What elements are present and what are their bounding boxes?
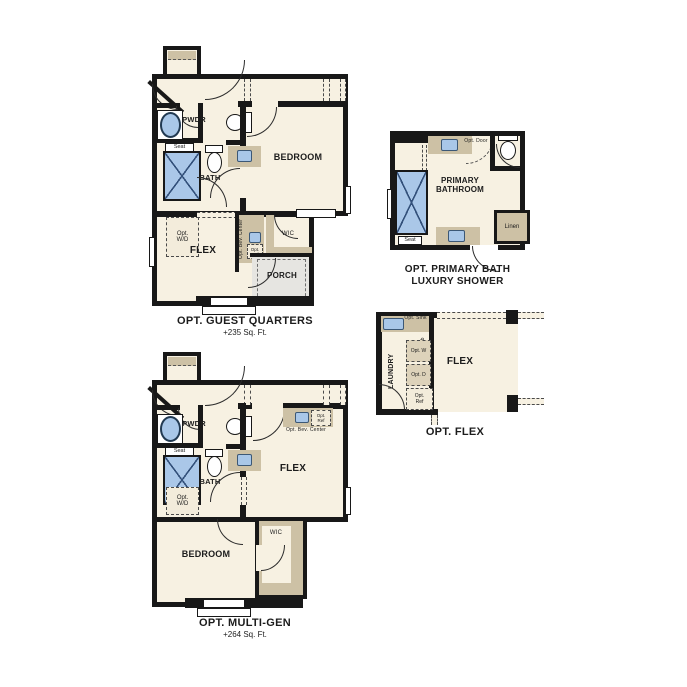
opt-wd-label: Opt. W/D xyxy=(172,495,194,507)
pwdr-label: PWDR xyxy=(176,420,212,428)
sink-icon xyxy=(295,412,309,423)
opening-dashed xyxy=(244,385,251,405)
bedroom-block xyxy=(152,517,262,607)
closet-shelf xyxy=(168,357,196,366)
floorplan-multi-gen: PWDR Seat BATH Opt. W/D Opt. Ref Opt. Be… xyxy=(0,0,687,687)
window xyxy=(345,487,351,515)
sink-icon xyxy=(237,454,252,466)
opt-washer-dryer: Opt. W/D xyxy=(166,487,199,515)
plan-subtitle: +264 Sq. Ft. xyxy=(154,630,336,639)
opening-dashed xyxy=(340,385,346,405)
wall xyxy=(152,405,180,410)
plan-title: OPT. MULTI-GEN xyxy=(154,617,336,629)
opt-fridge: Opt. Ref xyxy=(311,410,331,426)
opening-dashed xyxy=(241,477,247,505)
opt-bev-center-label: Opt. Bev. Center xyxy=(276,428,336,434)
bedroom-label: BEDROOM xyxy=(163,549,249,559)
bay-window xyxy=(203,599,245,608)
toilet-icon xyxy=(207,456,222,477)
floorplan-sheet: PWDR Seat BATH Opt. W/D BEDROOM FLEX Opt… xyxy=(0,0,687,687)
bay-window-step xyxy=(197,608,251,617)
flex-label: FLEX xyxy=(258,463,328,474)
opt-ref-label: Opt. Ref xyxy=(314,413,328,423)
opening-dashed xyxy=(323,385,330,405)
wic-label: WIC xyxy=(262,530,290,537)
